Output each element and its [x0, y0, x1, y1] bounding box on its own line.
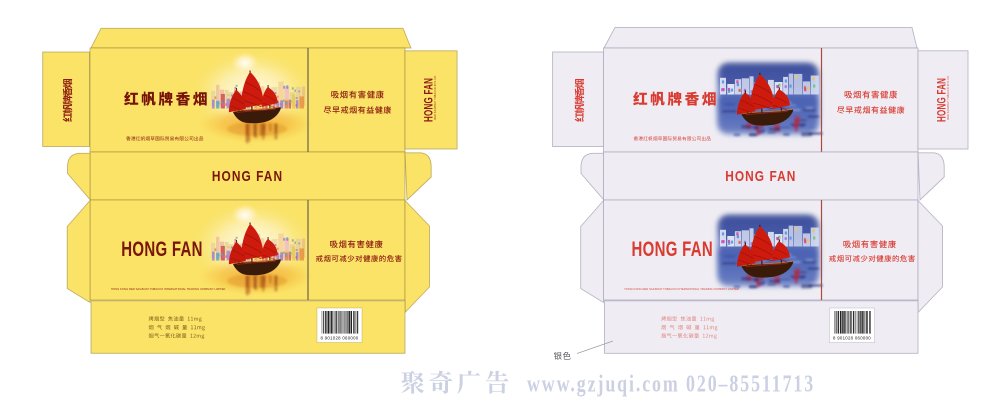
svg-text:RED SAILBOAT TOBACCO INTL CO.: RED SAILBOAT TOBACCO INTL CO. — [434, 75, 437, 120]
svg-text:www.gzjuqi.com 020–85511713: www.gzjuqi.com 020–85511713 — [527, 370, 815, 397]
svg-text:HONG FAN: HONG FAN — [632, 236, 714, 260]
svg-text:HONG FAN: HONG FAN — [212, 168, 283, 184]
svg-text:8 901028 060000: 8 901028 060000 — [833, 336, 871, 341]
svg-text:HONG KONG RED SAILBOAT TOBACCO: HONG KONG RED SAILBOAT TOBACCO INTERNATI… — [625, 287, 739, 291]
svg-text:8 901028 060000: 8 901028 060000 — [321, 336, 359, 341]
svg-text:HONG FAN: HONG FAN — [423, 78, 436, 122]
svg-text:HONG FAN: HONG FAN — [936, 78, 949, 122]
svg-text:HONG FAN: HONG FAN — [121, 236, 203, 260]
svg-text:RED SAILBOAT TOBACCO INTL CO.: RED SAILBOAT TOBACCO INTL CO. — [947, 75, 950, 120]
svg-text:HONG KONG RED SAILBOAT TOBACCO: HONG KONG RED SAILBOAT TOBACCO INTERNATI… — [111, 287, 225, 291]
svg-text:HONG FAN: HONG FAN — [725, 168, 796, 184]
